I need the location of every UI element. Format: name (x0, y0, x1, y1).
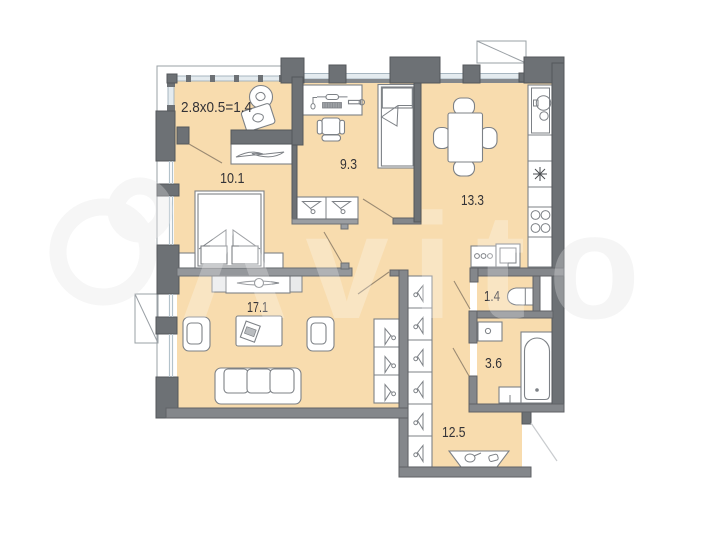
svg-text:10.1: 10.1 (220, 170, 245, 187)
svg-text:1.4: 1.4 (484, 288, 500, 305)
svg-text:13.3: 13.3 (461, 192, 484, 209)
svg-text:3.6: 3.6 (485, 355, 502, 372)
svg-text:17.1: 17.1 (247, 299, 268, 316)
svg-text:12.5: 12.5 (442, 424, 466, 441)
svg-text:2.8x0.5=1.4: 2.8x0.5=1.4 (181, 99, 252, 116)
svg-text:9.3: 9.3 (340, 156, 357, 173)
